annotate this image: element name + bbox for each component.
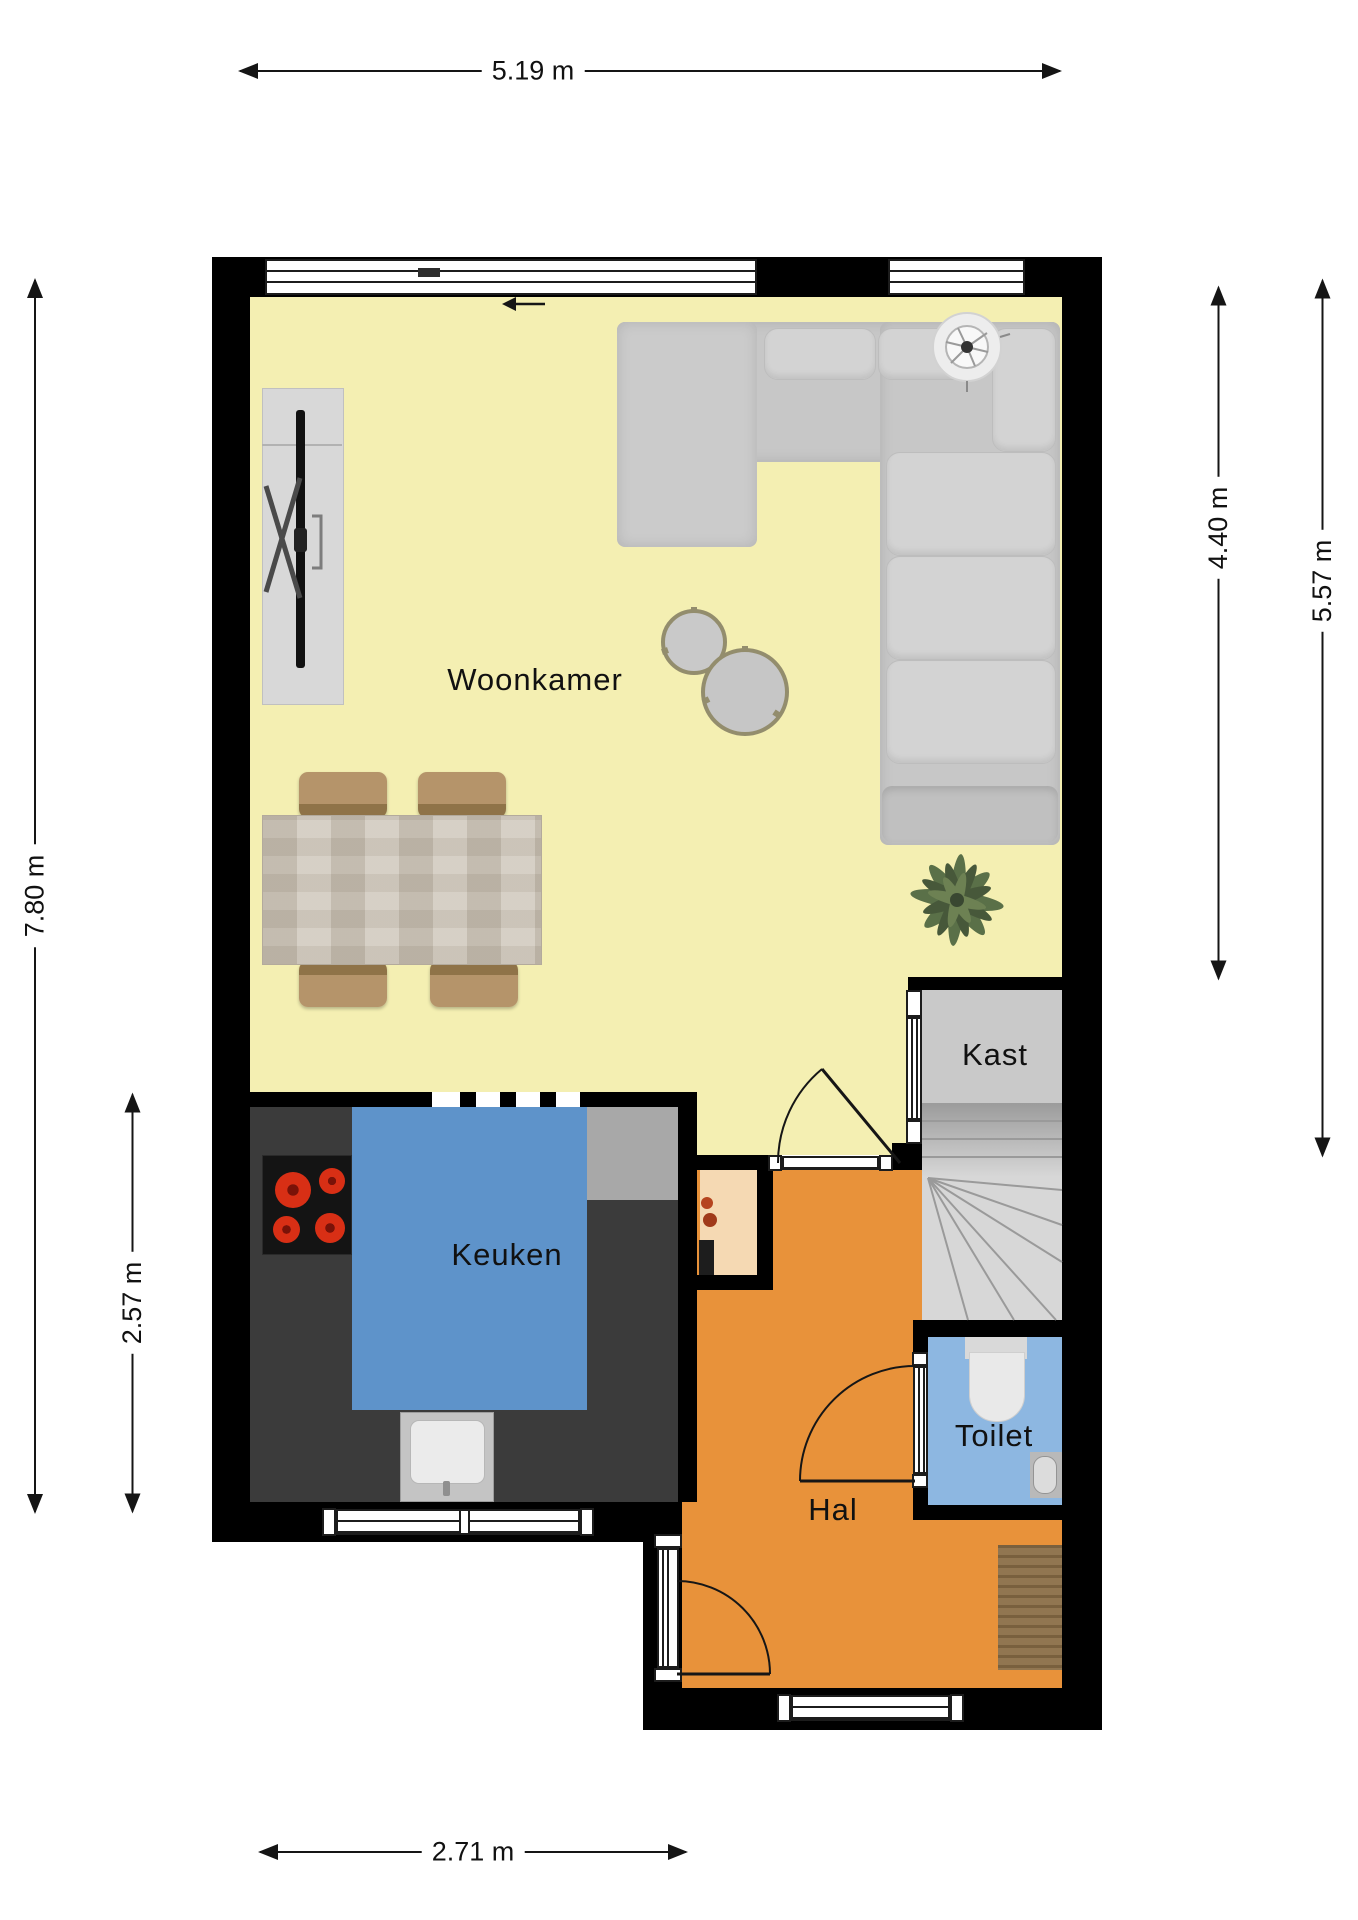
door-jamb [912, 1352, 928, 1366]
arrowhead-icon [27, 278, 43, 298]
dining-chair [299, 772, 387, 818]
label-hal: Hal [808, 1492, 858, 1528]
arrowhead-icon [1314, 278, 1330, 298]
window-jamb [906, 1120, 922, 1144]
kitchen-counter-right [587, 1200, 678, 1502]
wall-left [212, 257, 250, 1542]
dimension-left-total-label: 7.80 m [20, 845, 51, 948]
sofa-back-cushion [764, 328, 876, 380]
dimension-right-inner: 4.40 m [1206, 287, 1230, 978]
arrowhead-icon [668, 1844, 688, 1860]
burner-icon [319, 1168, 345, 1194]
door-jamb [879, 1155, 893, 1171]
sofa-armrest [882, 786, 1058, 842]
meter-closet-fixture-icon [703, 1213, 717, 1227]
tv-cabinet [262, 388, 344, 705]
room-hal-floor-main [682, 1290, 913, 1688]
door-jamb [654, 1668, 682, 1682]
meter-closet-fixture-icon [701, 1197, 713, 1209]
window-mullion [459, 1509, 470, 1535]
wall-right [1062, 257, 1102, 1730]
kitchen-counter-right-top [587, 1107, 678, 1200]
dimension-right-outer-label: 5.57 m [1307, 529, 1338, 632]
dimension-left-kitchen-label: 2.57 m [117, 1252, 148, 1355]
sliding-door-handle-icon [418, 268, 440, 277]
window-living-large [265, 259, 757, 295]
wall-kast-top [908, 977, 1062, 990]
dimension-bottom-label: 2.71 m [422, 1837, 525, 1868]
arrowhead-icon [27, 1494, 43, 1514]
window-living-right [888, 259, 1025, 295]
arrowhead-icon [1210, 960, 1226, 980]
burner-icon [315, 1213, 345, 1243]
window-kitchen [467, 1509, 580, 1535]
dining-chair [299, 961, 387, 1007]
toilet-door [913, 1366, 928, 1474]
pass-through-opening [432, 1092, 580, 1107]
dimension-bottom: 2.71 m [260, 1840, 686, 1864]
window-kitchen [336, 1509, 462, 1535]
wall-toilet-top [913, 1320, 1062, 1337]
arrowhead-icon [238, 63, 258, 79]
dining-chair [430, 961, 518, 1007]
wall-meter-closet-right [757, 1155, 773, 1290]
sofa-seat-cushion [886, 452, 1056, 556]
dimension-right-inner-label: 4.40 m [1203, 476, 1234, 579]
sofa-seat-cushion [886, 660, 1056, 764]
sink-basin-icon [410, 1420, 485, 1484]
dimension-left-total: 7.80 m [23, 280, 47, 1512]
burner-icon [273, 1216, 300, 1243]
label-kast: Kast [962, 1037, 1028, 1073]
faucet-icon [443, 1481, 450, 1496]
arrowhead-icon [1042, 63, 1062, 79]
arrowhead-icon [1314, 1137, 1330, 1157]
sofa-back-cushion [878, 328, 990, 380]
label-toilet: Toilet [955, 1418, 1033, 1454]
window-jamb [580, 1508, 594, 1536]
arrowhead-icon [124, 1093, 140, 1113]
doormat [998, 1545, 1062, 1670]
dining-table [262, 815, 542, 965]
staircase [922, 1103, 1062, 1320]
window-jamb [322, 1508, 336, 1536]
window-jamb [906, 990, 922, 1017]
dimension-left-kitchen: 2.57 m [120, 1095, 144, 1512]
arrowhead-icon [258, 1844, 278, 1860]
floorplan-canvas: Woonkamer Keuken Hal Kast Toilet 5.19 m … [0, 0, 1358, 1920]
toilet-sink-basin-icon [1033, 1456, 1057, 1494]
door-jamb [654, 1534, 682, 1548]
dining-chair [418, 772, 506, 818]
sofa-seat-cushion [886, 556, 1056, 660]
cooktop-icon [262, 1155, 352, 1255]
arrowhead-icon [1210, 285, 1226, 305]
burner-icon [275, 1172, 311, 1208]
interior-window-kast [906, 1017, 922, 1120]
window-jamb [950, 1694, 964, 1722]
sink-unit-icon [400, 1412, 494, 1502]
dimension-top: 5.19 m [240, 59, 1060, 83]
label-keuken: Keuken [451, 1237, 562, 1273]
window-jamb [777, 1694, 791, 1722]
toilet-sink-icon [1030, 1452, 1062, 1498]
wall-toilet-bottom [913, 1505, 1062, 1520]
label-woonkamer: Woonkamer [447, 662, 623, 698]
wall-kitchen-right [678, 1092, 697, 1502]
interior-door-hal-woonkamer [782, 1156, 879, 1170]
dimension-top-label: 5.19 m [482, 56, 585, 87]
dimension-right-outer: 5.57 m [1310, 280, 1334, 1155]
wall-door-corner [892, 1143, 922, 1170]
tv-cabinet-divider [262, 444, 342, 446]
sofa-corner-cushion [992, 328, 1056, 452]
front-door [657, 1548, 679, 1668]
window-hall [791, 1695, 950, 1721]
wall-meter-closet-bottom [678, 1275, 773, 1290]
sofa-chaise [617, 322, 757, 547]
door-jamb [912, 1474, 928, 1488]
door-jamb [768, 1155, 782, 1171]
toilet-bowl-icon [969, 1352, 1025, 1422]
arrowhead-icon [124, 1494, 140, 1514]
